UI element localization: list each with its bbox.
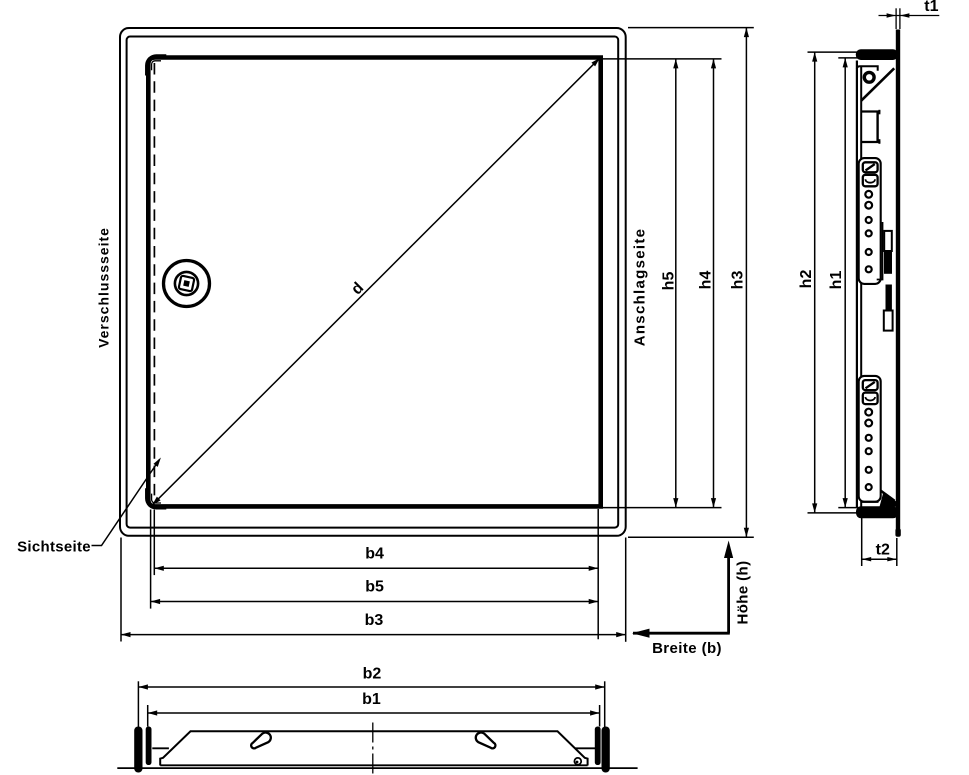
svg-text:b3: b3 — [365, 612, 384, 629]
svg-text:b5: b5 — [365, 579, 384, 596]
svg-text:Sichtseite: Sichtseite — [17, 538, 91, 555]
svg-text:Breite (b): Breite (b) — [652, 640, 722, 657]
svg-text:t2: t2 — [876, 542, 890, 559]
svg-text:b2: b2 — [363, 665, 382, 682]
svg-text:h3: h3 — [729, 271, 746, 290]
svg-text:b1: b1 — [362, 691, 381, 708]
svg-text:Verschlussseite: Verschlussseite — [96, 227, 112, 348]
svg-text:t1: t1 — [924, 0, 938, 15]
svg-text:Anschlagseite: Anschlagseite — [632, 228, 649, 347]
svg-text:h5: h5 — [661, 272, 678, 291]
svg-text:Höhe (h): Höhe (h) — [735, 560, 752, 624]
svg-text:h4: h4 — [698, 271, 715, 290]
svg-text:h1: h1 — [828, 271, 845, 290]
svg-text:d: d — [348, 279, 367, 298]
svg-text:b4: b4 — [365, 546, 384, 563]
svg-text:h2: h2 — [798, 270, 815, 289]
